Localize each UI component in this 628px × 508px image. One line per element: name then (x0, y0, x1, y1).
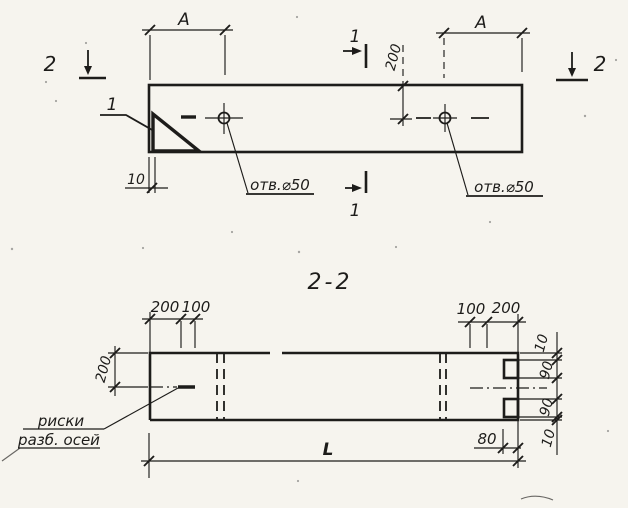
noise-dot (45, 81, 47, 83)
section-marker-1-bottom: 1 (345, 171, 366, 221)
corner-triangle-detail (153, 114, 199, 151)
dims-top-right: 100 200 (457, 299, 526, 352)
section-marker-2-left: 2 (44, 50, 106, 78)
dim-80-text: 80 (477, 430, 496, 448)
axis-note-text-2: разб. осей (17, 431, 100, 449)
noise-dot (584, 115, 586, 117)
dim-chain-right: 10 90 90 10 (519, 332, 562, 455)
hole-left-crosshair (205, 103, 243, 134)
marker-1-top-arrowhead-icon (352, 47, 362, 55)
callout-1: 1 (100, 95, 154, 131)
hidden-joint-right (440, 353, 446, 420)
top-view: А А 200 10 1 (44, 10, 607, 221)
dim-10: 10 (125, 157, 168, 193)
noise-dot (298, 251, 300, 253)
section-view: 2-2 200 100 100 200 (17, 270, 562, 478)
dim-L: L (141, 421, 526, 478)
technical-drawing: А А 200 10 1 (0, 0, 628, 508)
noise-dot (11, 248, 13, 250)
dim-a-right-lines (436, 33, 530, 72)
dim-chain-10-top-text: 10 (532, 333, 552, 354)
dim-top-right-100-text: 100 (457, 300, 486, 318)
dim-left-200-ext (108, 353, 148, 387)
dim-L-text: L (323, 440, 334, 460)
noise-dot (85, 42, 87, 44)
dims-top-left-ext (150, 312, 195, 352)
axis-note-text-1: риски (37, 412, 85, 430)
noise-dot (297, 480, 299, 482)
dim-a-left-lines (142, 30, 233, 80)
beam-outline (149, 85, 522, 152)
marker-2-left-arrowhead-icon (84, 66, 92, 75)
dim-L-ext (149, 421, 518, 478)
dim-a-left-text: А (177, 10, 190, 30)
dim-chain-90-bottom-text: 90 (537, 397, 557, 418)
hole-right-crosshair (433, 104, 457, 132)
axis-note: риски разб. осей (17, 388, 178, 449)
hole-label-right: отв.⌀50 (447, 123, 543, 196)
marker-1-top-text: 1 (350, 27, 361, 47)
dim-chain-10-bottom-text: 10 (539, 428, 559, 449)
end-notch-top (504, 360, 518, 378)
noise-dot (607, 430, 609, 432)
hidden-joint-left (217, 353, 224, 420)
dim-left-200: 200 (93, 346, 148, 396)
section-marker-1-top: 1 (343, 27, 366, 68)
noise-dot (296, 16, 298, 18)
dim-200-text: 200 (383, 42, 405, 72)
dim-a-right: А (436, 13, 530, 78)
marker-2-left-text: 2 (44, 52, 57, 76)
dim-top-left-100-text: 100 (182, 298, 211, 316)
dim-top-right-200-text: 200 (492, 299, 521, 317)
noise-dot (55, 100, 57, 102)
dim-top-left-200-text: 200 (151, 298, 180, 316)
dims-top-left: 200 100 (142, 298, 210, 352)
drawing-sheet: А А 200 10 1 (0, 0, 628, 508)
dim-10-text: 10 (127, 172, 145, 188)
callout-1-text: 1 (107, 95, 118, 115)
noise-dot (231, 231, 233, 233)
dims-top-right-ext (470, 314, 518, 352)
hole-label-left-leader (227, 123, 248, 193)
marker-2-right-arrowhead-icon (568, 68, 576, 77)
scan-stroke-bottom-right (521, 496, 553, 500)
dim-a-left: А (142, 10, 233, 80)
scan-stroke-bottom-left (2, 448, 20, 461)
section-marker-2-right: 2 (556, 52, 606, 80)
noise-dot (615, 59, 617, 61)
marker-1-bottom-arrowhead-icon (352, 184, 362, 192)
dim-a-right-text: А (474, 13, 487, 33)
marker-1-bottom-text: 1 (350, 201, 361, 221)
scan-artifacts (2, 16, 617, 500)
beam-section-outline (150, 353, 518, 420)
dim-left-200-text: 200 (93, 354, 115, 384)
dim-80: 80 (474, 429, 523, 454)
hole-label-right-text: отв.⌀50 (474, 178, 534, 196)
marker-2-right-text: 2 (594, 52, 607, 76)
section-title: 2-2 (308, 270, 353, 295)
hole-label-right-leader (447, 123, 468, 195)
hole-label-left: отв.⌀50 (227, 123, 314, 194)
hole-label-left-text: отв.⌀50 (250, 176, 310, 194)
end-notch-bottom (504, 399, 518, 417)
noise-dot (395, 246, 397, 248)
noise-dot (489, 221, 491, 223)
noise-dot (142, 247, 144, 249)
callout-1-leader (100, 115, 154, 131)
